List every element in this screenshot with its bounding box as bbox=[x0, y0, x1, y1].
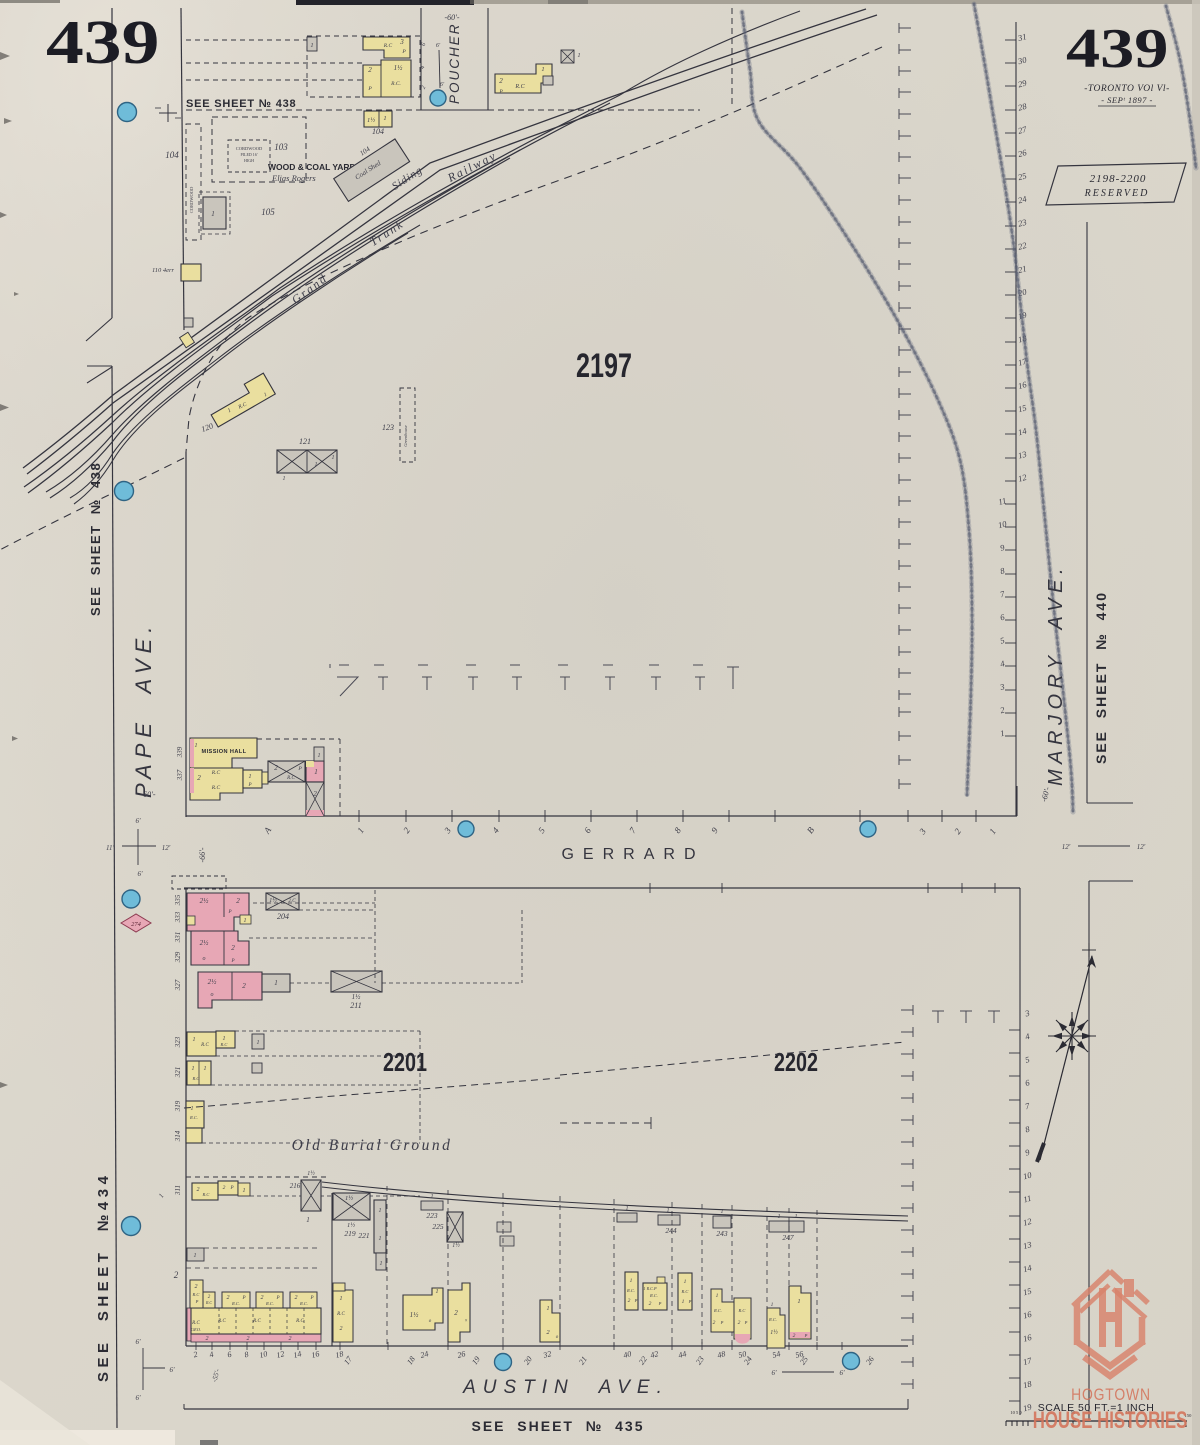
svg-text:R.C.: R.C. bbox=[649, 1293, 658, 1298]
svg-text:219: 219 bbox=[344, 1229, 356, 1238]
svg-text:329: 329 bbox=[174, 951, 182, 963]
svg-text:1: 1 bbox=[283, 476, 286, 482]
svg-text:P: P bbox=[227, 910, 231, 915]
svg-text:-66'-: -66'- bbox=[198, 847, 207, 862]
svg-text:P: P bbox=[195, 1299, 199, 1304]
svg-text:103: 103 bbox=[274, 142, 288, 152]
svg-text:R.C: R.C bbox=[200, 1043, 209, 1048]
svg-text:1: 1 bbox=[332, 455, 335, 461]
svg-text:12': 12' bbox=[162, 844, 171, 852]
svg-text:CORDWOOD: CORDWOOD bbox=[189, 186, 194, 213]
svg-text:2: 2 bbox=[738, 1320, 741, 1326]
svg-text:2: 2 bbox=[247, 1336, 250, 1342]
svg-text:204: 204 bbox=[277, 912, 289, 921]
svg-text:P: P bbox=[658, 1301, 662, 1306]
svg-text:2: 2 bbox=[195, 1284, 198, 1290]
svg-text:R.C.: R.C. bbox=[265, 1301, 274, 1306]
svg-text:SEE SHEET №434: SEE SHEET №434 bbox=[95, 1172, 112, 1382]
svg-text:1: 1 bbox=[721, 1209, 724, 1215]
svg-text:121: 121 bbox=[299, 437, 311, 446]
svg-text:R.C.: R.C. bbox=[768, 1317, 777, 1322]
svg-text:1: 1 bbox=[771, 1302, 774, 1308]
svg-text:R.C: R.C bbox=[295, 1319, 304, 1324]
svg-text:6': 6' bbox=[440, 82, 445, 88]
svg-text:HIGH: HIGH bbox=[244, 158, 254, 163]
svg-text:6': 6' bbox=[136, 1338, 142, 1346]
svg-text:R.C.: R.C. bbox=[626, 1288, 635, 1293]
svg-text:PAPE AVE.: PAPE AVE. bbox=[131, 621, 156, 798]
svg-text:274: 274 bbox=[131, 921, 142, 928]
svg-text:R.C: R.C bbox=[252, 1319, 261, 1324]
svg-text:2197: 2197 bbox=[576, 347, 632, 385]
svg-text:1: 1 bbox=[340, 1296, 343, 1302]
svg-text:P: P bbox=[241, 1296, 245, 1301]
svg-text:2: 2 bbox=[242, 982, 246, 990]
svg-text:HOUSE HISTORIES: HOUSE HISTORIES bbox=[1033, 1407, 1188, 1434]
svg-text:6': 6' bbox=[138, 870, 144, 878]
svg-text:1: 1 bbox=[383, 115, 386, 122]
svg-text:11': 11' bbox=[106, 844, 114, 852]
svg-text:-60'-: -60'- bbox=[140, 790, 155, 799]
svg-text:1½: 1½ bbox=[770, 1329, 778, 1336]
svg-text:2202: 2202 bbox=[774, 1047, 818, 1076]
svg-text:331: 331 bbox=[174, 932, 182, 944]
svg-text:R.C: R.C bbox=[220, 1042, 229, 1047]
svg-text:o: o bbox=[203, 956, 206, 962]
svg-text:1 R.C.P: 1 R.C.P bbox=[643, 1286, 657, 1291]
svg-text:223: 223 bbox=[426, 1211, 438, 1220]
svg-text:2: 2 bbox=[454, 1309, 458, 1317]
svg-text:439: 439 bbox=[46, 7, 159, 76]
svg-text:R.C: R.C bbox=[286, 776, 295, 781]
svg-text:R.C: R.C bbox=[211, 785, 221, 791]
svg-text:1: 1 bbox=[306, 1216, 310, 1224]
svg-text:Greenhouse: Greenhouse bbox=[403, 425, 408, 447]
svg-text:R.C: R.C bbox=[211, 770, 221, 776]
svg-text:R.C: R.C bbox=[681, 1289, 690, 1294]
svg-text:321: 321 bbox=[174, 1067, 182, 1079]
svg-text:6': 6' bbox=[436, 43, 441, 49]
svg-text:1: 1 bbox=[315, 462, 318, 468]
svg-text:-TORONTO VOl Vl-: -TORONTO VOl Vl- bbox=[1084, 84, 1169, 94]
svg-text:1: 1 bbox=[274, 979, 278, 987]
svg-text:1: 1 bbox=[778, 1214, 781, 1220]
svg-text:335: 335 bbox=[174, 894, 182, 906]
svg-text:2: 2 bbox=[231, 944, 235, 952]
svg-text:337: 337 bbox=[176, 769, 184, 781]
svg-text:2½: 2½ bbox=[208, 978, 218, 986]
svg-text:R.C.: R.C. bbox=[231, 1301, 240, 1306]
svg-text:2: 2 bbox=[793, 1333, 796, 1339]
svg-text:P: P bbox=[297, 766, 302, 772]
svg-text:1½: 1½ bbox=[394, 64, 404, 72]
svg-text:2: 2 bbox=[713, 1320, 716, 1326]
svg-text:2: 2 bbox=[499, 77, 503, 85]
svg-text:SEE SHEET № 438: SEE SHEET № 438 bbox=[88, 462, 103, 616]
svg-text:6': 6' bbox=[136, 817, 142, 825]
svg-text:GEO.: GEO. bbox=[191, 1327, 201, 1332]
svg-text:P: P bbox=[229, 1186, 233, 1191]
svg-text:2½: 2½ bbox=[200, 939, 210, 947]
svg-text:1½: 1½ bbox=[352, 993, 362, 1001]
svg-text:439: 439 bbox=[1066, 17, 1168, 80]
svg-text:1: 1 bbox=[431, 1194, 434, 1200]
svg-text:1: 1 bbox=[379, 1236, 382, 1242]
svg-text:104: 104 bbox=[165, 150, 179, 160]
svg-text:HOGTOWN: HOGTOWN bbox=[1071, 1386, 1151, 1405]
svg-text:PILED 16': PILED 16' bbox=[240, 152, 257, 157]
svg-text:R.C: R.C bbox=[205, 1300, 212, 1305]
svg-text:1: 1 bbox=[626, 1206, 629, 1212]
svg-text:1½: 1½ bbox=[345, 1195, 353, 1202]
svg-text:CORDWOOD: CORDWOOD bbox=[236, 146, 263, 151]
svg-text:Old Burial Ground: Old Burial Ground bbox=[292, 1137, 453, 1154]
svg-text:1: 1 bbox=[244, 918, 247, 924]
svg-text:P: P bbox=[634, 1298, 638, 1303]
svg-text:2: 2 bbox=[206, 1336, 209, 1342]
svg-text:1: 1 bbox=[630, 1278, 633, 1284]
svg-text:1: 1 bbox=[211, 210, 215, 218]
svg-text:AUSTIN AVE.: AUSTIN AVE. bbox=[462, 1377, 669, 1398]
svg-text:2: 2 bbox=[174, 1270, 179, 1280]
svg-text:1: 1 bbox=[193, 1037, 196, 1043]
svg-text:GERRARD: GERRARD bbox=[561, 846, 704, 863]
svg-text:6': 6' bbox=[772, 1369, 778, 1377]
svg-text:1: 1 bbox=[682, 1299, 685, 1305]
svg-text:105: 105 bbox=[261, 207, 275, 217]
svg-text:P: P bbox=[498, 89, 503, 95]
svg-text:2: 2 bbox=[197, 1187, 200, 1193]
svg-text:R.C.: R.C. bbox=[299, 1301, 308, 1306]
svg-text:1: 1 bbox=[314, 768, 318, 776]
svg-text:104: 104 bbox=[372, 127, 384, 136]
svg-text:P: P bbox=[744, 1320, 748, 1325]
svg-text:1: 1 bbox=[379, 1208, 382, 1214]
svg-text:1: 1 bbox=[191, 1106, 194, 1112]
svg-text:2: 2 bbox=[295, 1295, 298, 1301]
svg-text:2: 2 bbox=[340, 1326, 343, 1332]
svg-text:339: 339 bbox=[176, 746, 184, 758]
svg-text:243: 243 bbox=[716, 1229, 728, 1238]
svg-text:1: 1 bbox=[249, 774, 252, 780]
svg-text:R.C.: R.C. bbox=[390, 81, 401, 87]
svg-text:- SEPᵗ 1897 -: - SEPᵗ 1897 - bbox=[1101, 95, 1153, 105]
svg-text:P: P bbox=[804, 1333, 808, 1338]
svg-text:P: P bbox=[688, 1299, 692, 1304]
svg-text:MARJORY AVE.: MARJORY AVE. bbox=[1045, 563, 1067, 786]
svg-text:2: 2 bbox=[227, 1295, 230, 1301]
svg-text:244: 244 bbox=[665, 1226, 677, 1235]
svg-text:P: P bbox=[275, 1296, 279, 1301]
svg-text:R.C: R.C bbox=[192, 1076, 201, 1081]
svg-text:R.C.: R.C. bbox=[713, 1308, 722, 1313]
svg-text:1: 1 bbox=[243, 1188, 246, 1194]
svg-text:1: 1 bbox=[195, 743, 198, 749]
svg-text:P: P bbox=[720, 1320, 724, 1325]
svg-text:×: × bbox=[464, 1319, 467, 1324]
svg-text:2: 2 bbox=[313, 790, 317, 798]
svg-text:319: 319 bbox=[174, 1100, 182, 1112]
svg-text:P: P bbox=[401, 49, 406, 55]
svg-text:R.C: R.C bbox=[514, 84, 525, 90]
svg-text:6': 6' bbox=[840, 1369, 846, 1377]
svg-text:MISSION HALL: MISSION HALL bbox=[202, 749, 247, 755]
svg-text:POUCHER: POUCHER bbox=[447, 22, 462, 104]
svg-text:3: 3 bbox=[399, 38, 404, 46]
svg-text:1½: 1½ bbox=[410, 1311, 420, 1319]
svg-text:P: P bbox=[309, 1296, 313, 1301]
svg-text:123: 123 bbox=[382, 423, 394, 432]
svg-text:WOOD & COAL YARD: WOOD & COAL YARD bbox=[268, 162, 356, 172]
svg-text:323: 323 bbox=[174, 1036, 182, 1048]
svg-text:o: o bbox=[211, 992, 214, 998]
svg-text:2½: 2½ bbox=[200, 897, 210, 905]
svg-text:1: 1 bbox=[797, 1298, 800, 1305]
svg-text:1: 1 bbox=[318, 753, 321, 759]
svg-text:314: 314 bbox=[174, 1130, 182, 1142]
svg-text:2: 2 bbox=[223, 1185, 226, 1191]
svg-text:1: 1 bbox=[795, 1214, 798, 1220]
svg-text:2: 2 bbox=[628, 1298, 631, 1304]
svg-text:SEE SHEET № 435: SEE SHEET № 435 bbox=[472, 1418, 645, 1434]
svg-text:110 4err: 110 4err bbox=[152, 267, 175, 274]
svg-text:R.C: R.C bbox=[192, 1292, 201, 1297]
svg-text:SEE SHEET № 438: SEE SHEET № 438 bbox=[186, 98, 296, 110]
svg-text:1: 1 bbox=[194, 1253, 197, 1259]
svg-text:2: 2 bbox=[649, 1301, 652, 1307]
svg-text:1: 1 bbox=[380, 1261, 383, 1267]
svg-text:RESERVED: RESERVED bbox=[1084, 188, 1150, 199]
svg-text:211: 211 bbox=[350, 1001, 361, 1010]
svg-text:216: 216 bbox=[290, 1182, 301, 1190]
svg-text:P: P bbox=[247, 783, 251, 788]
svg-text:10 5 0: 10 5 0 bbox=[1010, 1410, 1022, 1415]
svg-text:311: 311 bbox=[174, 1185, 182, 1196]
svg-text:2: 2 bbox=[261, 1295, 264, 1301]
svg-text:12': 12' bbox=[1137, 843, 1146, 851]
svg-text:1: 1 bbox=[541, 66, 544, 73]
svg-text:SEE SHEET № 440: SEE SHEET № 440 bbox=[1093, 591, 1109, 764]
svg-text:2198-2200: 2198-2200 bbox=[1090, 173, 1147, 185]
svg-text:R.C: R.C bbox=[202, 1192, 211, 1197]
svg-text:1: 1 bbox=[204, 1066, 207, 1072]
svg-text:2: 2 bbox=[368, 66, 372, 74]
svg-text:333: 333 bbox=[174, 911, 182, 923]
svg-text:R.C: R.C bbox=[383, 43, 393, 49]
svg-text:247: 247 bbox=[782, 1233, 794, 1242]
svg-text:2: 2 bbox=[236, 897, 240, 905]
svg-text:225: 225 bbox=[432, 1222, 444, 1231]
svg-text:1: 1 bbox=[547, 1306, 550, 1312]
svg-text:R.C: R.C bbox=[336, 1312, 345, 1317]
svg-text:6': 6' bbox=[170, 1366, 176, 1374]
svg-text:1: 1 bbox=[716, 1293, 719, 1299]
svg-text:1: 1 bbox=[577, 52, 580, 59]
svg-text:1: 1 bbox=[684, 1279, 687, 1285]
svg-text:1½: 1½ bbox=[347, 1222, 355, 1229]
svg-text:2: 2 bbox=[274, 764, 278, 772]
svg-text:1½: 1½ bbox=[452, 1242, 460, 1249]
svg-text:1½: 1½ bbox=[367, 117, 375, 124]
svg-text:1: 1 bbox=[257, 1040, 260, 1046]
svg-text:221: 221 bbox=[358, 1231, 369, 1240]
svg-text:1: 1 bbox=[436, 1289, 439, 1295]
svg-text:R.C: R.C bbox=[217, 1319, 226, 1324]
svg-text:1½: 1½ bbox=[307, 1170, 315, 1177]
svg-text:R.C.: R.C. bbox=[189, 1115, 198, 1120]
svg-text:-60'-: -60'- bbox=[444, 13, 459, 22]
svg-text:1: 1 bbox=[310, 42, 313, 49]
svg-text:6': 6' bbox=[136, 1394, 142, 1402]
svg-text:R.C: R.C bbox=[191, 1321, 200, 1326]
svg-text:2: 2 bbox=[197, 774, 201, 782]
svg-text:2: 2 bbox=[289, 1336, 292, 1342]
svg-text:1: 1 bbox=[667, 1208, 670, 1214]
svg-text:R.C: R.C bbox=[738, 1308, 747, 1313]
svg-text:327: 327 bbox=[174, 979, 182, 991]
svg-text:Elias Rogers: Elias Rogers bbox=[271, 173, 316, 183]
svg-text:P: P bbox=[230, 959, 234, 964]
svg-text:12': 12' bbox=[1062, 843, 1071, 851]
svg-text:1: 1 bbox=[192, 1066, 195, 1072]
svg-text:2201: 2201 bbox=[383, 1047, 427, 1076]
svg-text:P: P bbox=[367, 86, 372, 92]
